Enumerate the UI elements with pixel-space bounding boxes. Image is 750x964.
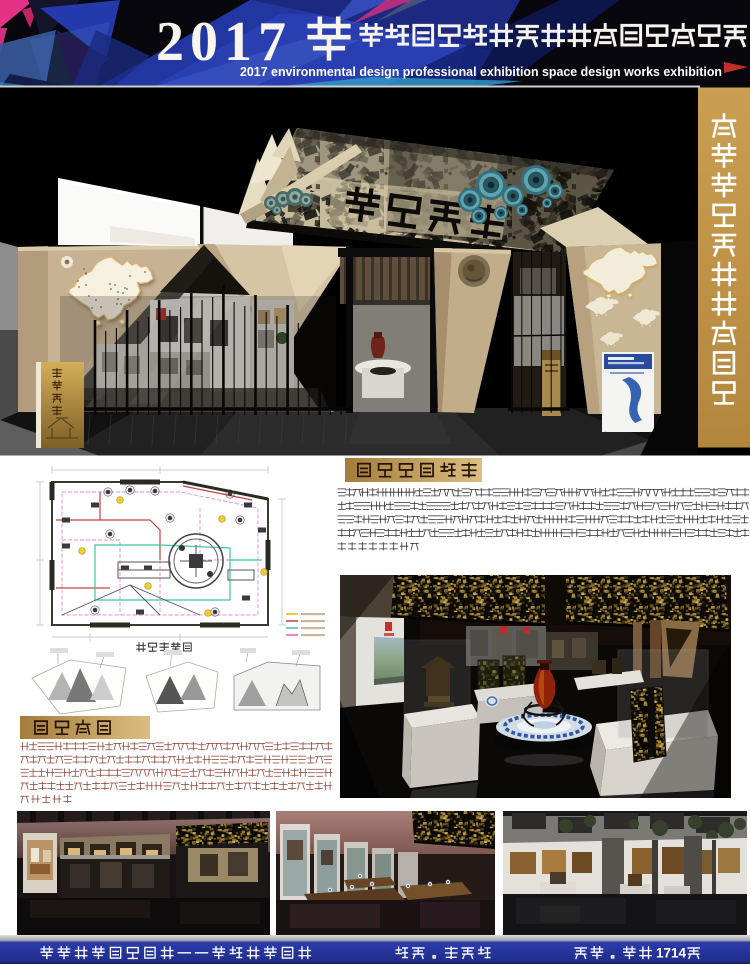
svg-text:1714: 1714 [656, 946, 687, 961]
svg-text:2017 environmental design prof: 2017 environmental design professional e… [240, 65, 722, 79]
svg-text:2017: 2017 [156, 11, 292, 73]
